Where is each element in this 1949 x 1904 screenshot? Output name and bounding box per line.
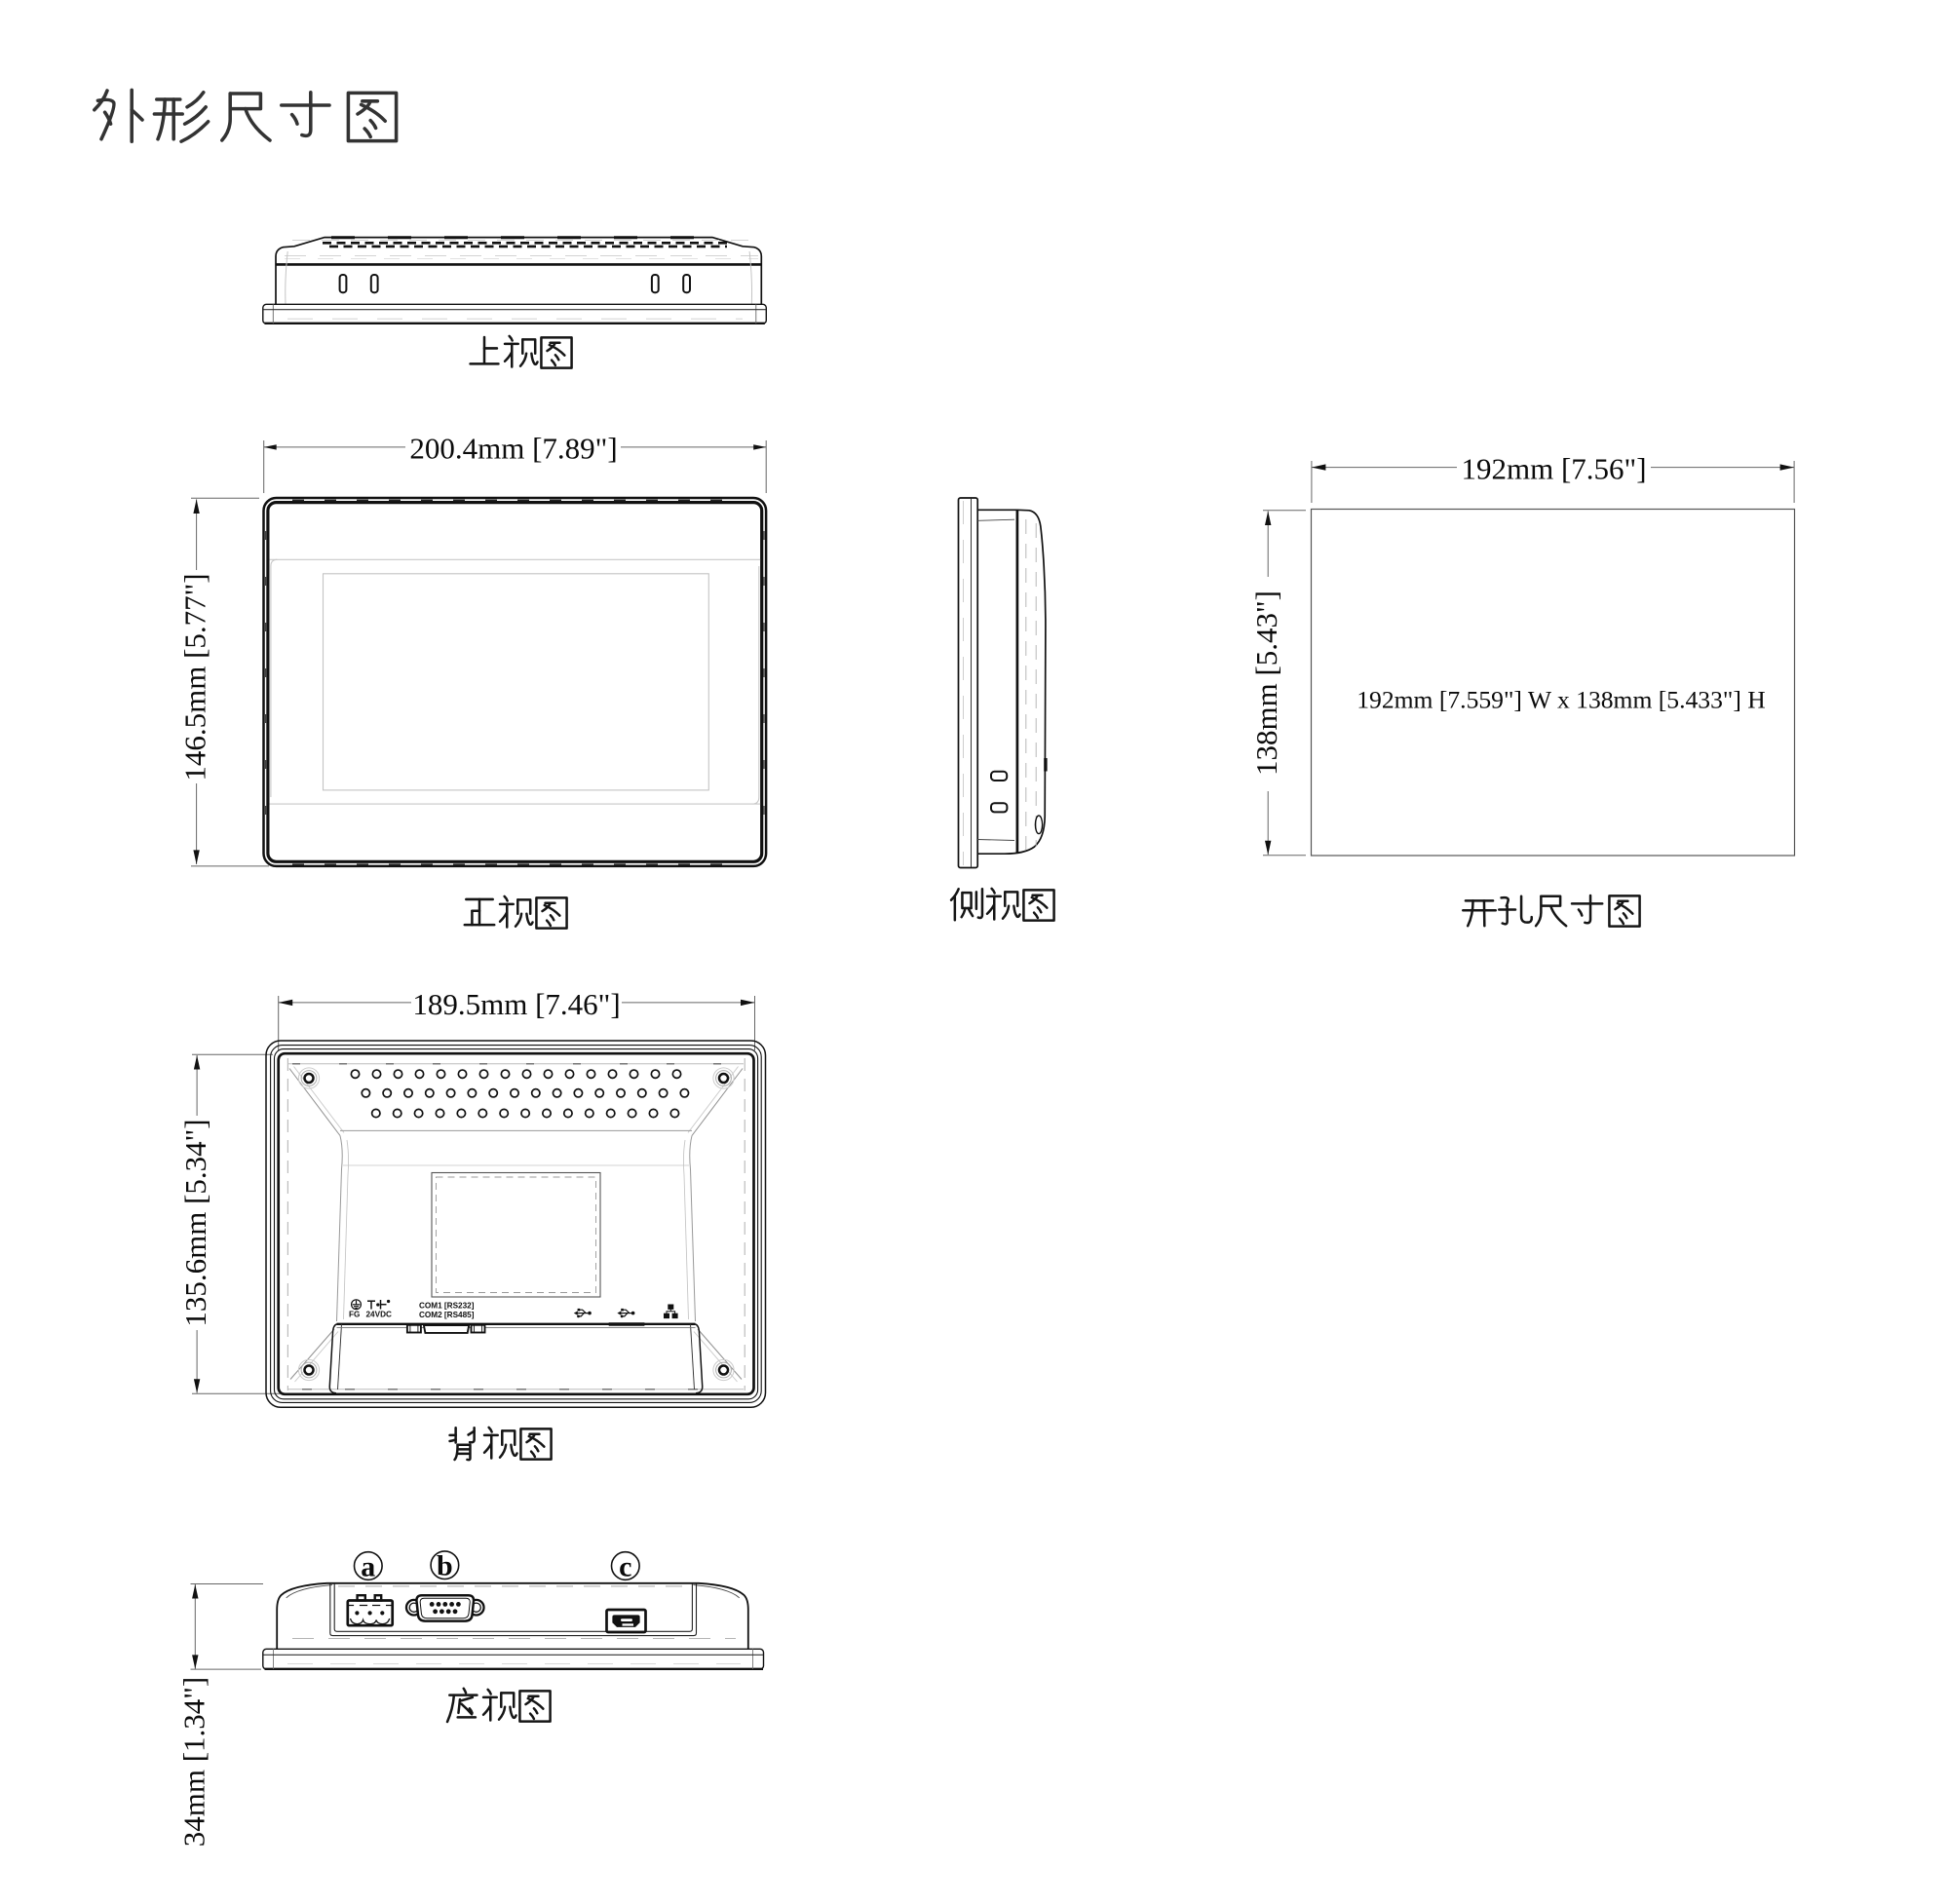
svg-text:192mm [7.56"]: 192mm [7.56"]: [1461, 452, 1646, 486]
svg-text:b: b: [437, 1550, 453, 1582]
svg-text:200.4mm [7.89"]: 200.4mm [7.89"]: [409, 432, 617, 466]
svg-text:146.5mm [5.77"]: 146.5mm [5.77"]: [178, 573, 212, 781]
svg-text:FG: FG: [349, 1311, 360, 1319]
svg-text:COM2 [RS485]: COM2 [RS485]: [419, 1311, 475, 1319]
svg-text:138mm [5.43"]: 138mm [5.43"]: [1249, 590, 1283, 776]
svg-text:34mm [1.34"]: 34mm [1.34"]: [177, 1677, 211, 1847]
svg-text:COM1 [RS232]: COM1 [RS232]: [419, 1301, 475, 1310]
svg-text:24VDC: 24VDC: [366, 1311, 392, 1319]
svg-text:c: c: [619, 1551, 631, 1583]
svg-text:189.5mm [7.46"]: 189.5mm [7.46"]: [412, 987, 620, 1021]
svg-text:192mm [7.559"] W x 138mm [5.43: 192mm [7.559"] W x 138mm [5.433"] H: [1357, 686, 1765, 714]
svg-text:135.6mm [5.34"]: 135.6mm [5.34"]: [178, 1119, 212, 1326]
svg-text:a: a: [361, 1551, 375, 1583]
